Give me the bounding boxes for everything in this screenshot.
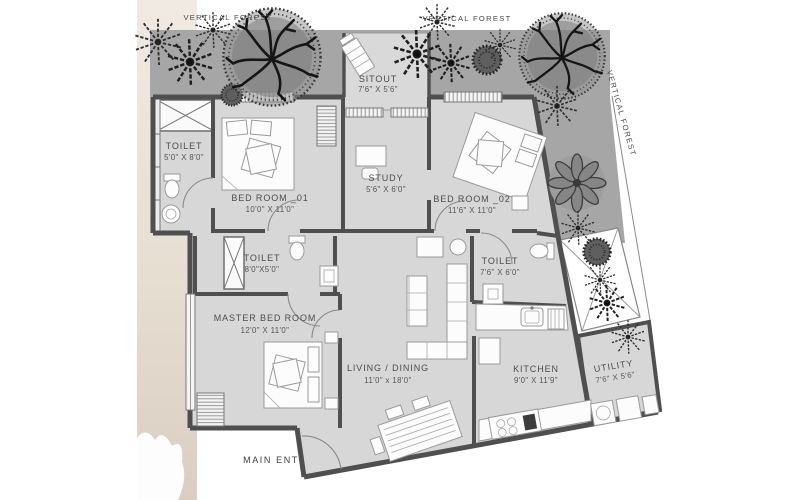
room-label-kitchen: KITCHEN: [513, 364, 559, 374]
floor-plan-svg: VERTICAL FOREST VERTICAL FOREST VERTICAL…: [0, 0, 800, 500]
room-label-bedroom1: BED ROOM _01: [231, 193, 308, 203]
room-dims-study: 5'6" X 6'0": [366, 185, 406, 194]
branch-tree-icon: [519, 13, 605, 99]
vertical-forest-label-top-right: VERTICAL FOREST: [422, 14, 511, 23]
room-label-bedroom2: BED ROOM _02: [433, 194, 510, 204]
toilet-wc-icon-3: [530, 243, 554, 259]
washbasin-icon-3: [483, 284, 503, 304]
dish-rack-icon: [548, 309, 564, 329]
toilet-wc-icon-2: [289, 236, 305, 260]
kitchen-sink-counter-icon: [476, 304, 568, 330]
console-icon: [407, 342, 467, 359]
room-label-toilet1: TOILET: [166, 141, 203, 151]
room-dims-bedroom1: 10'0" X 11'0": [246, 205, 295, 214]
room-label-study: STUDY: [368, 173, 403, 183]
tv-unit-icon: [447, 264, 467, 342]
shaft-mid: [224, 237, 244, 289]
vertical-forest-label-top-left: VERTICAL FOREST: [183, 13, 272, 22]
room-dims-bedroom2: 11'6" X 11'0": [448, 206, 496, 215]
wardrobe-bedroom1: [317, 106, 336, 146]
window-sitout-left: [346, 108, 383, 117]
room-label-living: LIVING / DINING: [347, 363, 429, 373]
room-label-toilet3: TOILET: [482, 256, 519, 266]
shaft-top-left: [157, 100, 214, 131]
fridge-icon: [479, 338, 500, 364]
room-dims-living: 11'0" x 18'0": [364, 376, 411, 385]
side-table-icon-bedroom2: [512, 196, 528, 210]
room-dims-master: 12'0" X 11'0": [241, 326, 290, 335]
room-label-toilet2: TOILET: [244, 253, 281, 263]
window-master-left: [186, 294, 195, 410]
toilet-wc-icon-1: [164, 174, 180, 198]
bed-icon-bedroom1: [222, 118, 294, 190]
wardrobe-master: [197, 393, 224, 426]
room-dims-toilet3: 7'6" X 6'0": [480, 268, 520, 277]
room-label-sitout: SITOUT: [359, 74, 397, 84]
branch-tree-icon: [223, 8, 320, 105]
room-dims-toilet2: 8'0"X5'0": [245, 265, 280, 274]
room-dims-kitchen: 9'0" X 11'9": [514, 376, 558, 385]
room-dims-sitout: 7'6" X 5'6": [358, 85, 398, 94]
main-entrance-label: MAIN ENT: [243, 455, 299, 465]
window-bedroom2: [444, 92, 502, 102]
washbasin-icon-2: [320, 266, 338, 286]
leaf-tree-icon: [548, 154, 606, 212]
room-dims-toilet1: 5'0" X 8'0": [164, 153, 204, 162]
floor-plan-page: VERTICAL FOREST VERTICAL FOREST VERTICAL…: [0, 0, 800, 500]
room-label-master: MASTER BED ROOM: [214, 313, 317, 323]
bush-tree-icon: [584, 239, 611, 266]
window-sitout-right: [391, 108, 428, 117]
washbasin-icon-1: [162, 205, 180, 223]
